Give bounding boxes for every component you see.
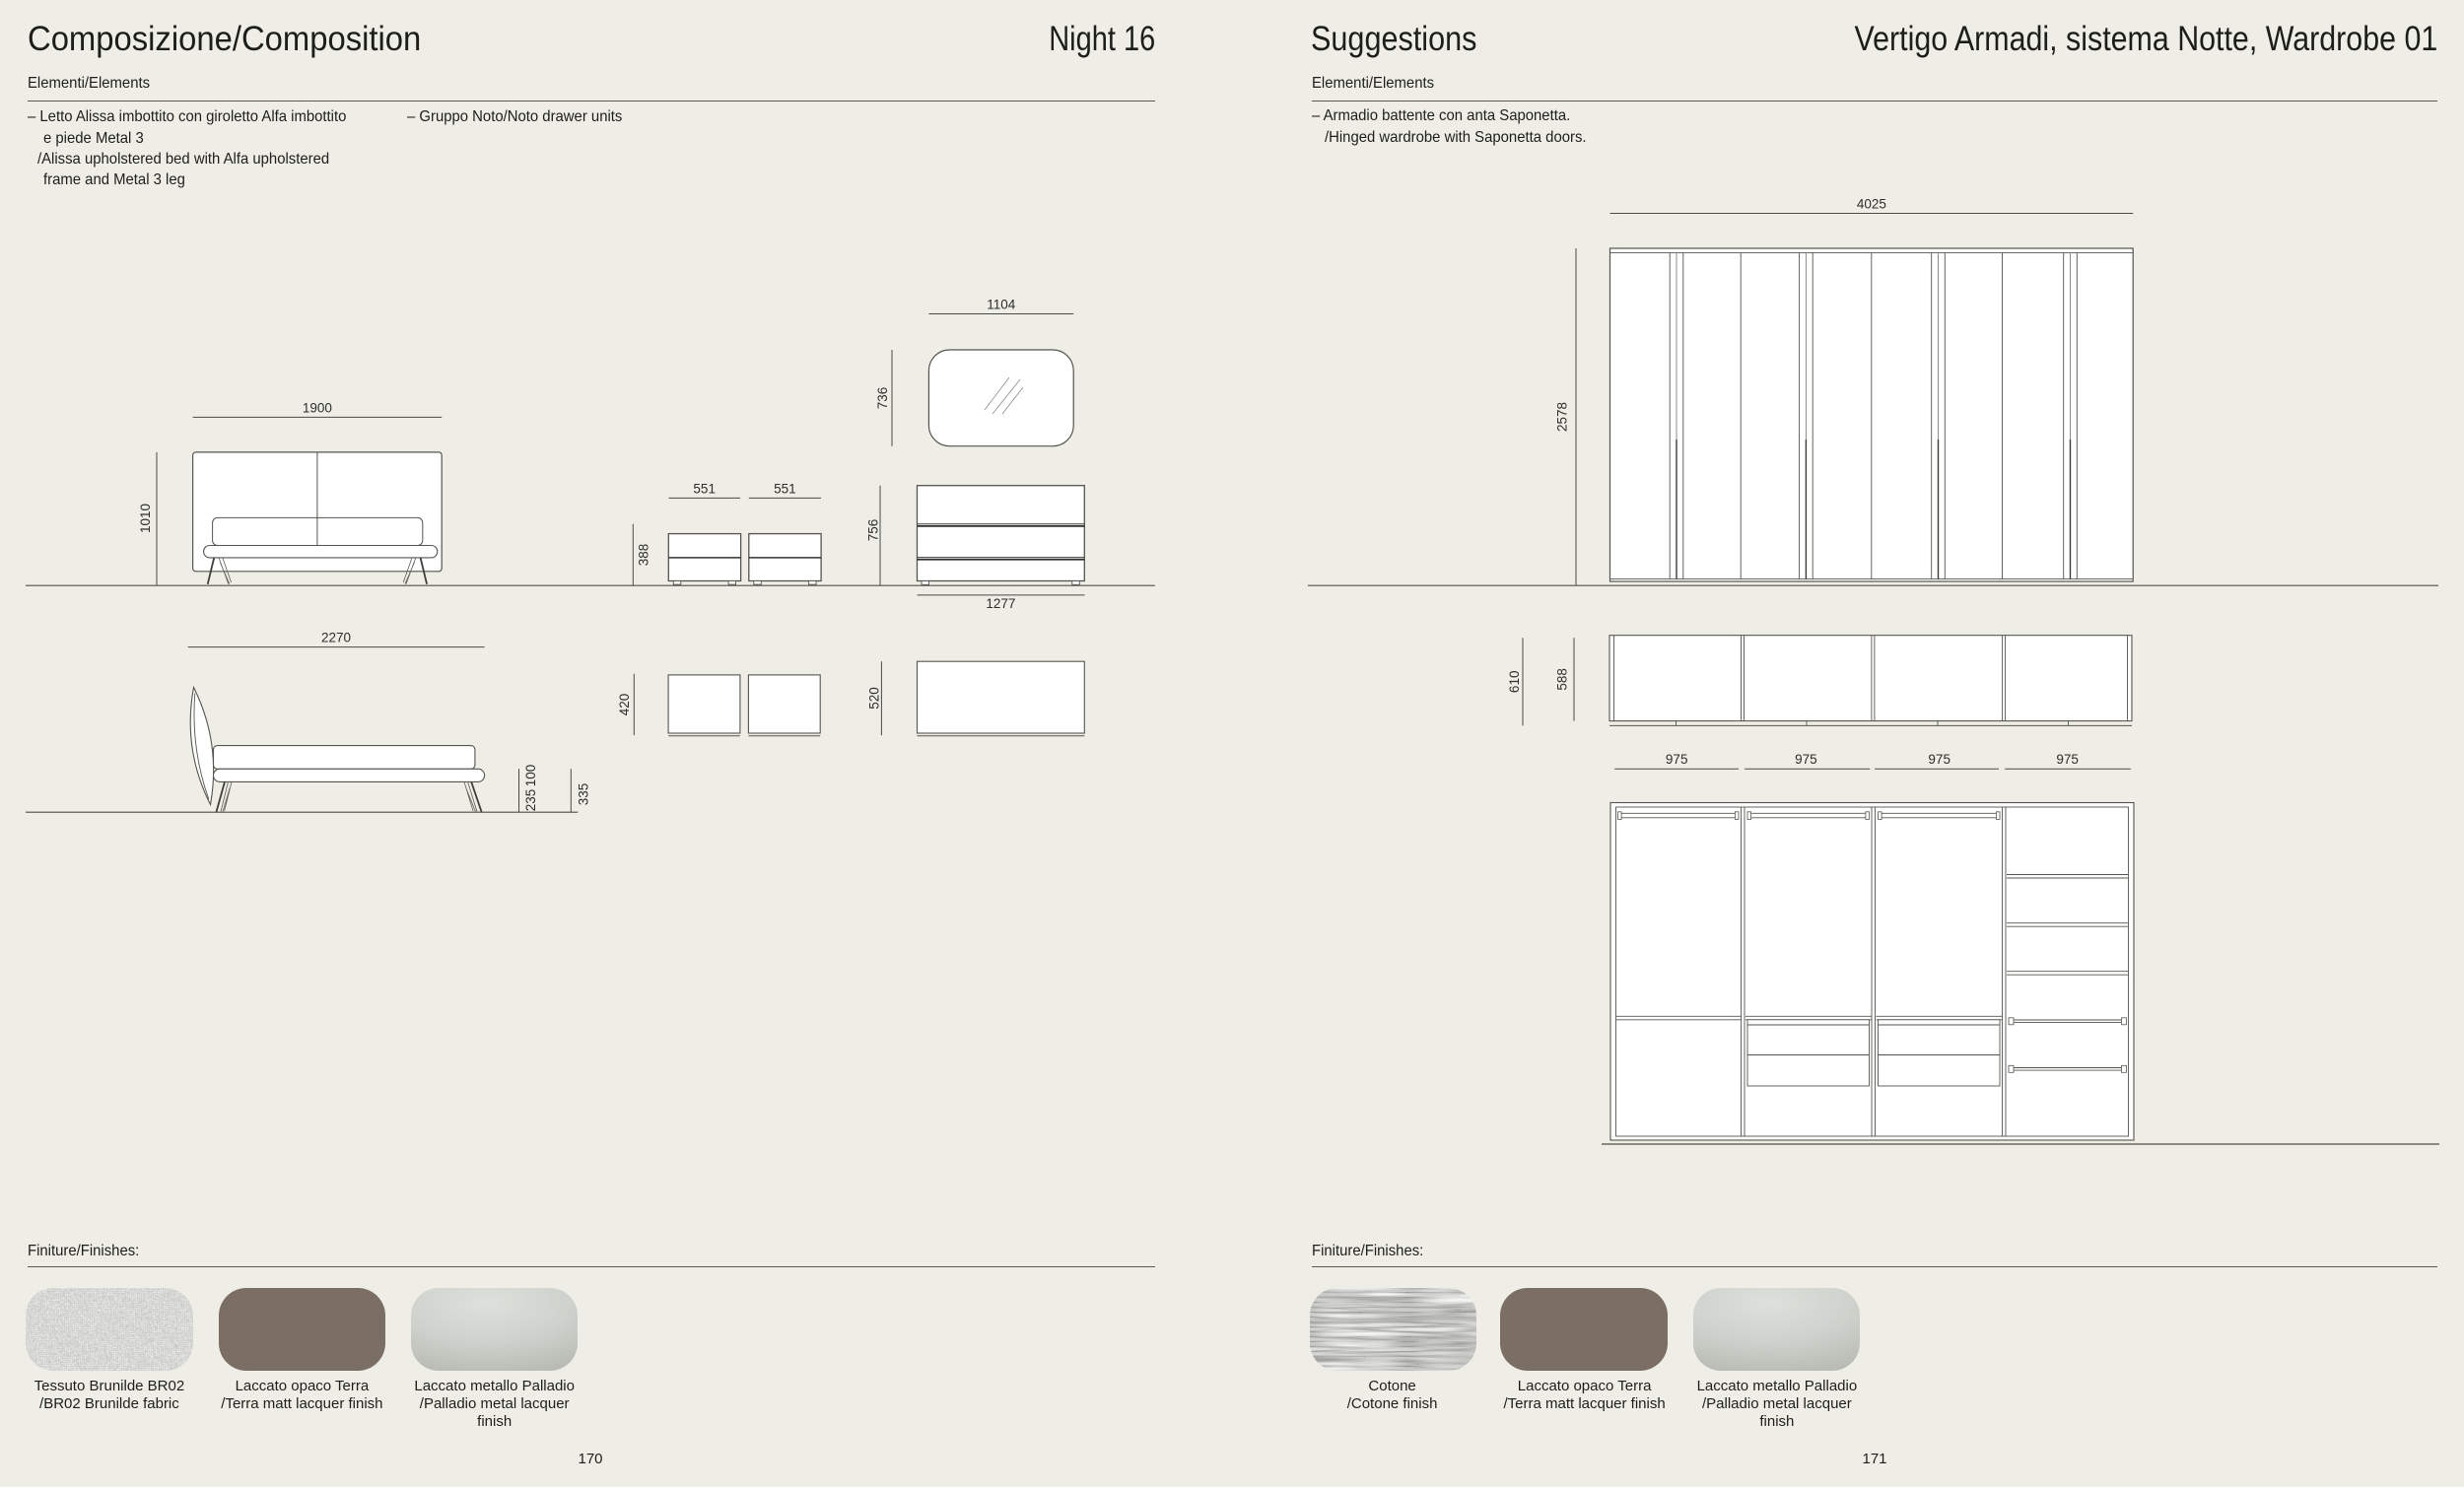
svg-text:100: 100 — [523, 765, 538, 787]
svg-text:1104: 1104 — [987, 298, 1016, 312]
svg-text:975: 975 — [1795, 752, 1817, 767]
svg-text:1010: 1010 — [138, 504, 153, 533]
svg-text:335: 335 — [576, 783, 590, 806]
svg-text:2270: 2270 — [321, 631, 351, 645]
svg-text:975: 975 — [1666, 752, 1688, 767]
svg-text:975: 975 — [1928, 752, 1951, 767]
svg-text:551: 551 — [693, 481, 716, 496]
svg-text:756: 756 — [866, 519, 881, 542]
svg-text:388: 388 — [637, 544, 651, 567]
svg-text:588: 588 — [1555, 668, 1570, 691]
svg-text:975: 975 — [2056, 752, 2079, 767]
svg-text:520: 520 — [867, 687, 882, 710]
svg-text:1900: 1900 — [303, 400, 332, 415]
svg-text:420: 420 — [617, 694, 632, 716]
svg-text:4025: 4025 — [1857, 197, 1886, 212]
svg-text:610: 610 — [1507, 671, 1522, 694]
svg-text:2578: 2578 — [1555, 402, 1570, 432]
svg-text:235: 235 — [523, 789, 538, 812]
svg-text:1277: 1277 — [986, 596, 1015, 611]
svg-text:736: 736 — [875, 387, 890, 410]
svg-text:551: 551 — [774, 481, 796, 496]
